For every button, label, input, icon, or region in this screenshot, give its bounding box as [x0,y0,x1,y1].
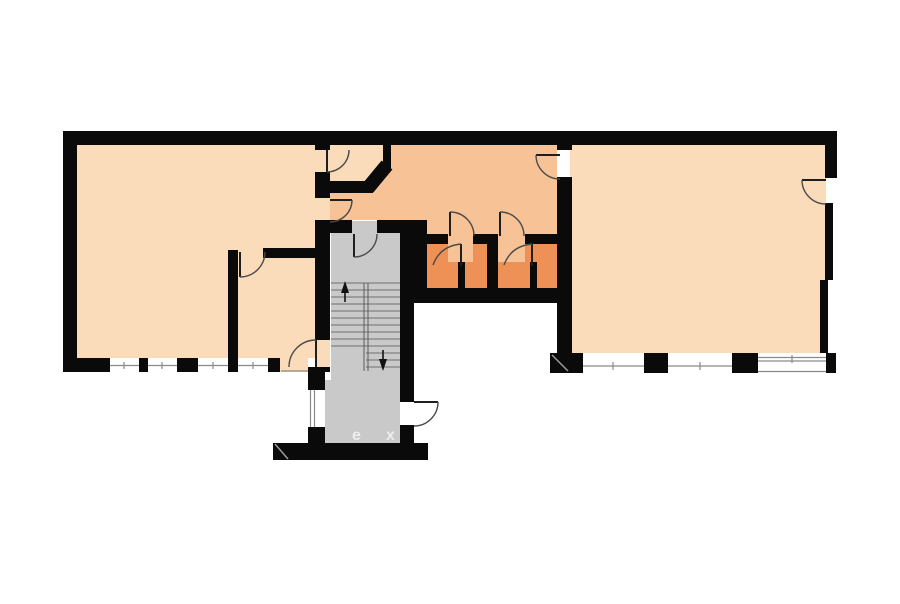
door-gap-2 [315,198,330,222]
room-right [570,145,826,353]
windows [110,355,826,427]
window [758,355,826,372]
window [238,362,268,369]
floor-plan-canvas: e x [0,0,900,604]
stair-door-gap [352,221,377,233]
window [198,362,228,369]
wc-2-lobby [498,234,525,262]
stairwell [331,233,400,443]
wall-partition-v [228,250,238,358]
wall-wc-divider [487,234,498,288]
window [668,362,732,370]
room-left-bay [280,358,308,372]
window [308,390,317,427]
wall-left [63,145,77,358]
window [583,362,644,370]
window [148,362,177,369]
stairwell-vestibule [325,380,331,443]
entry-platform [273,443,428,460]
stair-label-x: x [386,427,395,444]
stair-label-e: e [352,427,361,444]
window [110,362,139,369]
door-gap-3 [315,340,330,367]
floor-plan-svg: e x [0,0,900,604]
wall-partition-h [263,248,315,258]
wall-top [63,131,837,145]
door [414,402,438,426]
